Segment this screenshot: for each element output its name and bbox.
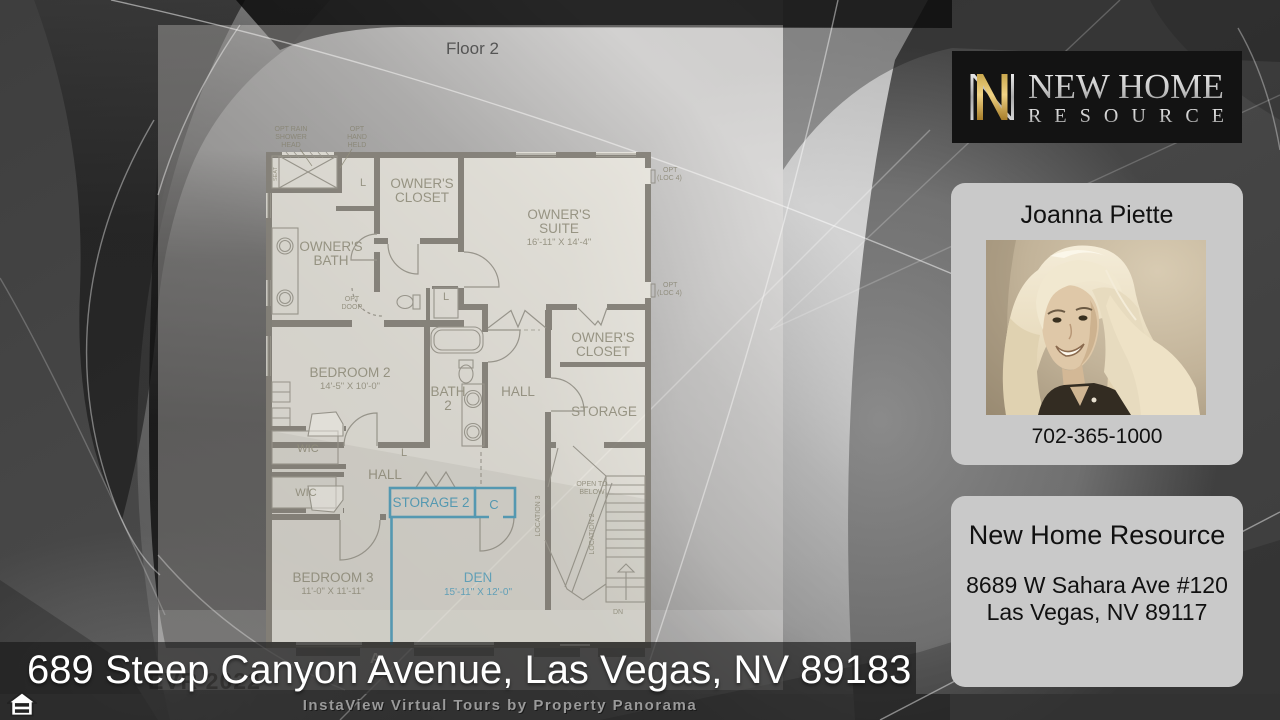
svg-text:NEW HOME: NEW HOME xyxy=(1028,67,1224,106)
